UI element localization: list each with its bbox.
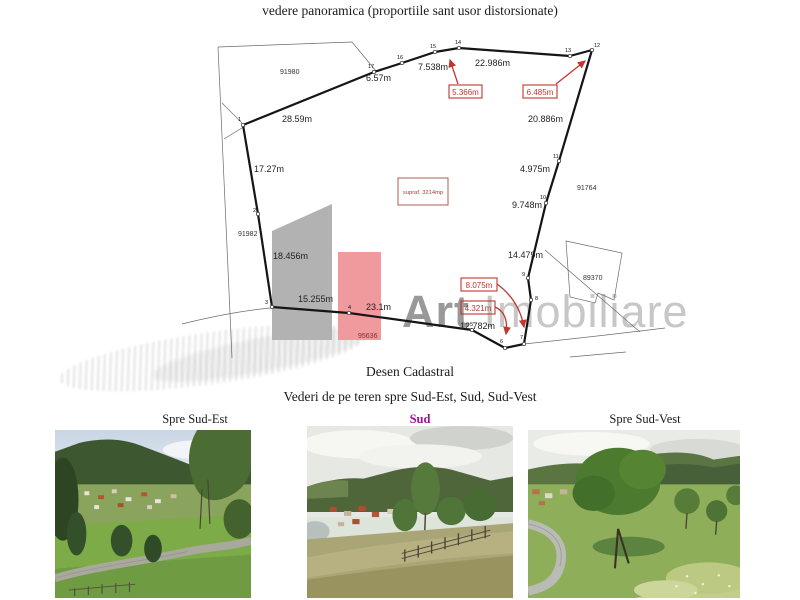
gray-building-shape — [272, 204, 332, 340]
point-number: 3 — [265, 300, 268, 306]
point-number: 13 — [565, 48, 571, 54]
drawing-caption: Desen Cadastral — [20, 364, 800, 380]
area-label: supraf. 3214mp — [403, 190, 443, 196]
photo-sud — [307, 426, 513, 598]
measurement-label: 14.479m — [508, 250, 543, 260]
svg-text:6.485m: 6.485m — [527, 88, 554, 97]
photo-sud-vest-scene — [528, 430, 740, 598]
measurement-label: 6.57m — [366, 73, 391, 83]
area-label-box: supraf. 3214mp — [398, 178, 448, 205]
point-number: 11 — [553, 154, 559, 160]
page-title: vedere panoramica (proportiile sant usor… — [20, 3, 800, 19]
svg-text:5.366m: 5.366m — [452, 88, 479, 97]
measurement-label: 18.456m — [273, 251, 308, 261]
watermark-imobiliare: Imobiliare — [484, 286, 689, 337]
parcel-number: 91764 — [577, 185, 597, 192]
point-number: 4 — [348, 305, 351, 311]
parcel-number: 91982 — [238, 231, 258, 238]
point-number: 14 — [455, 40, 461, 46]
measurement-label: 9.748m — [512, 200, 542, 210]
red-measure-box: 6.485m — [523, 61, 585, 98]
point-number: 15 — [430, 44, 436, 50]
measurement-label: 15.255m — [298, 294, 333, 304]
point-number: 2 — [253, 208, 256, 214]
photo-sud-est — [55, 430, 251, 598]
point-number: 9 — [522, 272, 525, 278]
point-number: 1 — [238, 117, 241, 123]
listing-page: vedere panoramica (proportiile sant usor… — [0, 0, 800, 600]
measurement-label: 4.975m — [520, 164, 550, 174]
point-number: 10 — [540, 195, 546, 201]
parcel-number: 91980 — [280, 69, 300, 76]
measurement-label: 22.986m — [475, 58, 510, 68]
photo-label-sud-est: Spre Sud-Est — [95, 412, 295, 428]
parcel-number: 89370 — [583, 275, 603, 282]
point-number: 12 — [594, 43, 600, 49]
point-number: 16 — [397, 55, 403, 61]
photo-sud-scene — [307, 426, 513, 598]
photo-sud-est-scene — [55, 430, 251, 598]
photo-label-sud-vest: Spre Sud-Vest — [545, 412, 745, 428]
measurement-label: 17.27m — [254, 164, 284, 174]
measurement-label: 20.886m — [528, 114, 563, 124]
measurement-label: 7.538m — [418, 62, 448, 72]
photos-caption: Vederi de pe teren spre Sud-Est, Sud, Su… — [20, 389, 800, 405]
point-number: 6 — [500, 339, 503, 345]
watermark: Art Imobiliare — [402, 286, 662, 338]
watermark-art: Art — [402, 286, 470, 337]
measurement-label: 23.1m — [366, 302, 391, 312]
red-measure-box: 5.366m — [449, 60, 482, 98]
photo-sud-vest — [528, 430, 740, 598]
measurement-label: 28.59m — [282, 114, 312, 124]
point-number: 17 — [368, 64, 374, 70]
